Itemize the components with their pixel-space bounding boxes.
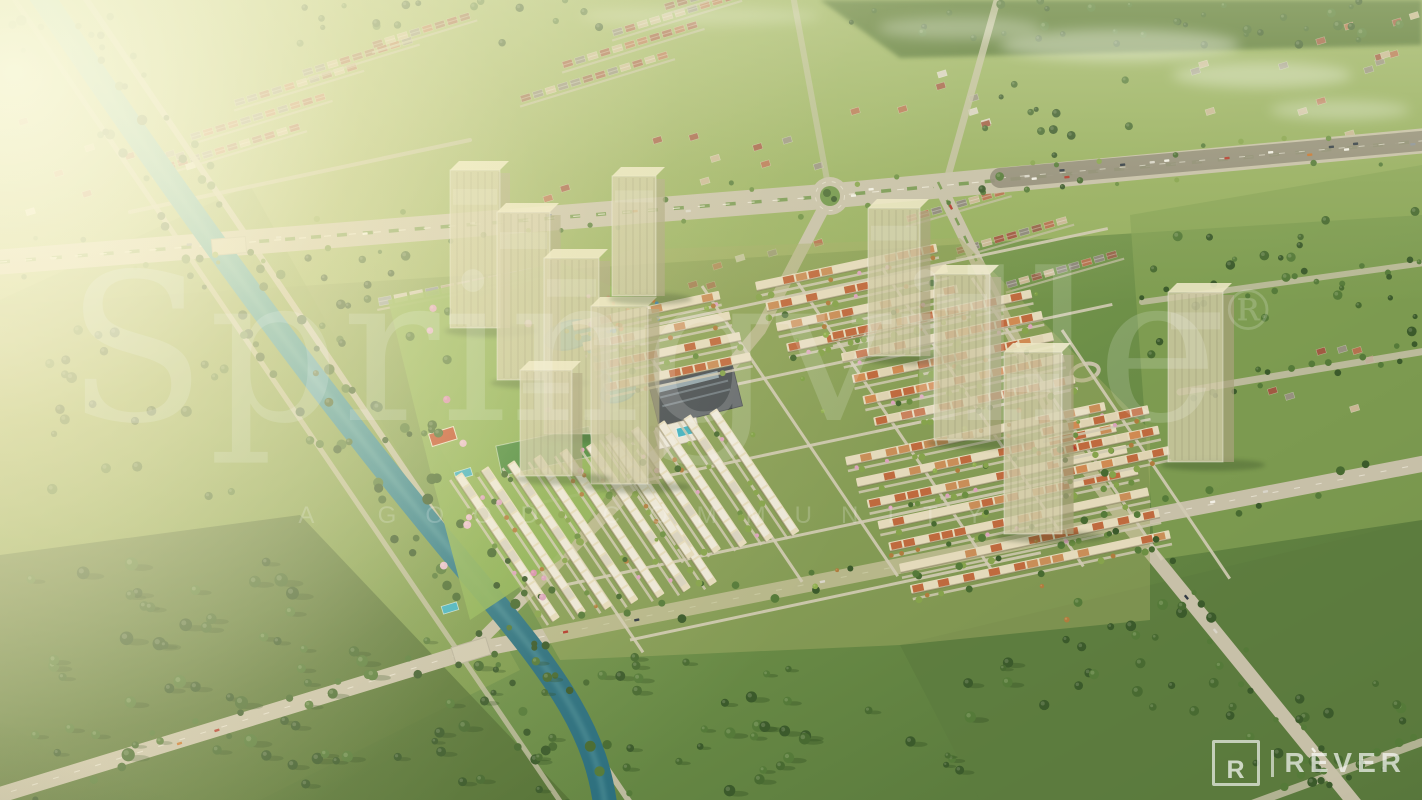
tree-light — [1077, 421, 1079, 423]
tree — [259, 282, 268, 291]
tree-light — [1133, 632, 1137, 636]
tree — [1039, 700, 1049, 710]
tree-light — [1174, 19, 1177, 22]
tree-light — [306, 256, 309, 259]
tree — [187, 272, 194, 279]
tree-light — [133, 742, 136, 745]
tree-light — [202, 623, 206, 627]
tree-light — [1356, 303, 1359, 306]
tree-light — [957, 767, 961, 771]
tree-light — [67, 725, 71, 729]
tree-light — [1358, 29, 1362, 33]
tree-light — [997, 173, 1000, 176]
tree — [202, 285, 207, 290]
tree — [1356, 37, 1362, 43]
tree — [47, 484, 57, 494]
tree-light — [1217, 663, 1220, 666]
tree — [328, 688, 338, 698]
tree-light — [1323, 217, 1326, 220]
tree-light — [1227, 712, 1231, 716]
tree — [1273, 748, 1283, 758]
tree — [678, 614, 687, 623]
tree-light — [1275, 750, 1279, 754]
tree-light — [1281, 15, 1284, 18]
tree — [455, 661, 462, 668]
tree — [548, 734, 556, 742]
tree-light — [447, 700, 451, 704]
tree-light — [1310, 757, 1314, 761]
tree-light — [979, 186, 982, 189]
tree — [578, 611, 585, 618]
tree — [1174, 177, 1179, 182]
tree — [27, 575, 36, 584]
tower-side — [990, 277, 1001, 440]
tree — [378, 250, 382, 254]
tree — [626, 790, 632, 796]
tree — [394, 753, 402, 761]
tree — [1037, 127, 1045, 135]
tree-light — [1034, 108, 1036, 110]
tree — [297, 40, 304, 47]
tree-light — [416, 1, 418, 3]
tree — [1346, 774, 1352, 780]
tree — [1147, 350, 1155, 358]
tree-light — [127, 592, 131, 596]
tree — [51, 431, 57, 437]
tree-light — [212, 374, 215, 377]
tree — [143, 262, 149, 268]
tree — [1395, 20, 1403, 28]
tree — [1101, 511, 1108, 518]
tree — [1334, 755, 1344, 765]
tree — [1323, 708, 1334, 719]
tree — [97, 31, 105, 39]
tree-light — [445, 309, 448, 312]
tree — [1134, 511, 1141, 518]
tree — [1288, 365, 1295, 372]
tree-light — [705, 307, 707, 309]
tree — [423, 637, 430, 644]
tree-light — [314, 371, 316, 373]
tree — [566, 687, 573, 694]
tree — [995, 172, 1004, 181]
tree-light — [1157, 339, 1160, 342]
car — [686, 210, 691, 213]
tree — [996, 0, 1005, 9]
tree-light — [1063, 637, 1066, 640]
tree-light — [141, 603, 145, 607]
tree — [1314, 279, 1320, 285]
tree — [378, 495, 386, 503]
tree-light — [1315, 766, 1318, 769]
tree — [658, 600, 665, 607]
tree-light — [813, 584, 815, 586]
tree — [434, 727, 444, 737]
tree-light — [1328, 10, 1332, 14]
tree-light — [75, 327, 79, 331]
tree — [256, 352, 265, 361]
tree-light — [1314, 280, 1316, 282]
tree — [785, 666, 791, 672]
tree — [498, 39, 506, 47]
tree-light — [1123, 78, 1126, 81]
tree — [1173, 152, 1179, 158]
tree-light — [676, 759, 679, 762]
tree-light — [326, 399, 330, 403]
tree — [432, 473, 442, 483]
tree — [324, 398, 333, 407]
tree-light — [1262, 315, 1265, 318]
tree — [1221, 2, 1227, 8]
tree — [440, 562, 448, 570]
tree — [99, 44, 105, 50]
tree-light — [471, 4, 474, 7]
tower-glass — [500, 232, 547, 249]
tree-light — [1078, 644, 1082, 648]
tree-light — [751, 734, 754, 737]
tree — [1077, 642, 1086, 651]
mist — [1172, 62, 1352, 88]
tree — [1271, 288, 1278, 295]
tree-light — [1191, 707, 1195, 711]
tree-light — [872, 9, 874, 11]
tree — [235, 696, 248, 709]
tree-light — [517, 5, 520, 8]
tower-top — [1004, 343, 1071, 352]
tree-light — [966, 713, 971, 718]
roundabout-tree — [823, 189, 831, 197]
tree — [216, 260, 220, 264]
tree — [480, 696, 489, 705]
tree — [1062, 636, 1069, 643]
tree — [704, 306, 709, 311]
tree — [506, 625, 512, 631]
tree — [413, 535, 420, 542]
tree — [442, 581, 452, 591]
tree — [207, 181, 215, 189]
tree-light — [79, 568, 84, 573]
tree — [855, 182, 860, 187]
tree — [98, 56, 105, 63]
tree — [147, 406, 157, 416]
tree — [946, 10, 952, 16]
tree-light — [52, 432, 55, 435]
tree — [541, 745, 551, 755]
tree — [373, 402, 383, 412]
tree-light — [764, 671, 767, 674]
tree-light — [801, 377, 803, 379]
tree — [382, 437, 388, 443]
tree — [1295, 40, 1304, 49]
tree — [400, 209, 406, 215]
tree — [595, 23, 603, 31]
tree — [1394, 343, 1400, 349]
tree — [1027, 109, 1033, 115]
tree — [132, 461, 142, 471]
tree — [364, 295, 372, 303]
tree — [1407, 257, 1414, 264]
tree — [261, 259, 266, 264]
tree-light — [1334, 292, 1338, 296]
tree — [1356, 760, 1366, 770]
tree-light — [1108, 624, 1111, 627]
tree-light — [407, 333, 411, 337]
tree — [110, 327, 120, 337]
tree — [982, 125, 988, 131]
tree — [333, 445, 341, 453]
tower-side — [648, 309, 659, 484]
tower-top — [544, 249, 608, 258]
tree — [338, 339, 346, 347]
tree — [1281, 136, 1286, 141]
tree — [729, 180, 734, 185]
tree — [912, 570, 919, 577]
tree — [436, 747, 446, 757]
tree — [16, 15, 27, 26]
tree-light — [965, 680, 969, 684]
tree-light — [1279, 256, 1281, 258]
tower-top — [450, 161, 509, 170]
tree — [458, 720, 470, 732]
tree-light — [973, 463, 975, 465]
tree-light — [999, 95, 1001, 97]
tree — [542, 641, 550, 649]
tree-light — [50, 656, 54, 660]
tree — [173, 675, 186, 688]
tree-light — [1076, 683, 1079, 686]
tree-light — [596, 24, 599, 27]
tree-light — [777, 763, 781, 767]
tree-light — [132, 418, 135, 421]
tree-light — [287, 608, 291, 612]
tree-light — [322, 275, 325, 278]
tree — [240, 331, 248, 339]
car — [1329, 145, 1334, 148]
tree — [201, 622, 212, 633]
tree — [1313, 765, 1321, 773]
tree — [535, 753, 542, 760]
tree-light — [221, 366, 225, 370]
tree — [132, 741, 139, 748]
tree-light — [289, 761, 293, 765]
tree-light — [1202, 13, 1204, 15]
mist — [878, 17, 1042, 39]
tree-light — [402, 252, 406, 256]
tree — [1153, 536, 1160, 543]
tree — [514, 743, 522, 751]
tree — [191, 140, 199, 148]
tree — [400, 423, 410, 433]
tree — [1325, 359, 1332, 366]
tree-light — [634, 687, 638, 691]
tree-light — [342, 4, 344, 6]
tree-light — [175, 677, 180, 682]
tree-light — [795, 339, 797, 341]
tree — [871, 8, 876, 13]
tree — [505, 558, 511, 564]
tree — [1253, 760, 1260, 767]
car — [1120, 163, 1125, 166]
tree-light — [162, 642, 165, 645]
tree — [306, 436, 315, 445]
car — [362, 232, 367, 235]
tree — [1206, 234, 1213, 241]
tree — [1297, 242, 1303, 248]
tree — [1261, 314, 1269, 322]
tree — [196, 255, 204, 263]
tree — [955, 766, 964, 775]
tree — [1173, 18, 1180, 25]
tree — [130, 52, 137, 59]
car — [1164, 159, 1169, 162]
tree — [1355, 302, 1361, 308]
tree-light — [428, 328, 431, 331]
car — [1353, 142, 1358, 145]
tree-light — [499, 40, 502, 43]
tree-light — [214, 747, 218, 751]
tree-light — [32, 732, 35, 735]
tree — [1295, 715, 1303, 723]
tree — [452, 593, 460, 601]
tree-light — [49, 485, 53, 489]
tree — [809, 570, 815, 576]
tree-light — [1068, 132, 1071, 135]
tree — [835, 568, 839, 572]
tree — [429, 305, 436, 312]
tree — [1150, 265, 1157, 272]
tree-light — [947, 11, 949, 13]
tree — [131, 417, 139, 425]
tree-light — [1127, 622, 1131, 626]
tree — [356, 655, 368, 667]
tree — [1333, 290, 1342, 299]
tree — [212, 745, 221, 754]
tree-light — [343, 753, 348, 758]
car — [276, 236, 281, 239]
tree-light — [1335, 757, 1339, 761]
tree — [300, 645, 308, 653]
tree — [1327, 8, 1336, 17]
tree — [161, 641, 169, 649]
tree — [274, 573, 287, 586]
tree — [1096, 159, 1101, 164]
tree — [632, 686, 642, 696]
tree-light — [90, 401, 93, 404]
tree — [1152, 634, 1159, 641]
tree-light — [698, 744, 701, 747]
tree — [145, 602, 155, 612]
tree-light — [101, 348, 104, 351]
tree — [1399, 717, 1406, 724]
tree-light — [1400, 718, 1403, 721]
tree — [137, 115, 147, 125]
tree — [1000, 665, 1006, 671]
tree — [724, 785, 735, 796]
car — [851, 194, 856, 197]
tree-light — [1309, 779, 1313, 783]
tree — [1255, 367, 1261, 373]
tree — [1359, 263, 1365, 269]
tree — [630, 653, 639, 662]
tree — [701, 725, 708, 732]
tree — [1163, 286, 1169, 292]
tree-light — [47, 360, 51, 364]
tree — [821, 409, 825, 413]
tree-light — [350, 648, 354, 652]
tree — [1381, 766, 1387, 772]
tree — [1407, 326, 1417, 336]
tree-light — [475, 662, 479, 666]
tree-light — [1053, 110, 1056, 113]
tree — [1417, 259, 1422, 264]
tree-light — [1148, 352, 1151, 355]
tree-light — [127, 559, 132, 564]
tree-light — [983, 126, 985, 128]
tree-light — [1090, 671, 1094, 675]
tree — [732, 581, 740, 589]
tree — [126, 590, 136, 600]
tree — [143, 175, 149, 181]
tree — [681, 219, 686, 224]
tree — [212, 252, 218, 258]
tree — [346, 438, 353, 445]
tree — [220, 364, 229, 373]
tree — [401, 251, 411, 261]
tree-light — [147, 604, 151, 608]
roundabout-tree — [831, 196, 837, 202]
tree — [253, 341, 259, 347]
tree — [894, 174, 899, 179]
tree — [409, 549, 416, 556]
tree — [432, 738, 439, 745]
tree-light — [395, 22, 398, 25]
mist — [1270, 100, 1410, 120]
tree — [1080, 516, 1088, 524]
tree — [1357, 28, 1367, 38]
tree-light — [1050, 126, 1054, 130]
tree — [1392, 700, 1401, 709]
tree-light — [1244, 26, 1248, 30]
tree-light — [1382, 767, 1384, 769]
tree-light — [251, 578, 256, 583]
tree — [1339, 285, 1344, 290]
tree — [474, 661, 484, 671]
tree-light — [360, 257, 363, 260]
tree — [763, 670, 770, 677]
car — [868, 188, 873, 191]
tree — [515, 4, 523, 12]
tree — [118, 148, 127, 157]
tree-light — [433, 739, 436, 742]
tree-light — [1041, 23, 1045, 27]
tree — [978, 185, 985, 192]
tree — [190, 585, 200, 595]
tree — [946, 201, 950, 205]
tree — [1280, 783, 1288, 791]
tree — [1011, 81, 1018, 88]
tree — [1348, 23, 1355, 30]
tree-light — [55, 750, 58, 753]
tree — [1089, 669, 1099, 679]
tree-light — [227, 694, 230, 697]
tree — [106, 13, 113, 20]
tree-light — [282, 718, 285, 721]
tree-light — [347, 439, 350, 442]
tower-side — [1223, 295, 1234, 462]
tree — [1247, 688, 1253, 694]
tree — [244, 734, 257, 747]
tree — [1317, 777, 1324, 784]
